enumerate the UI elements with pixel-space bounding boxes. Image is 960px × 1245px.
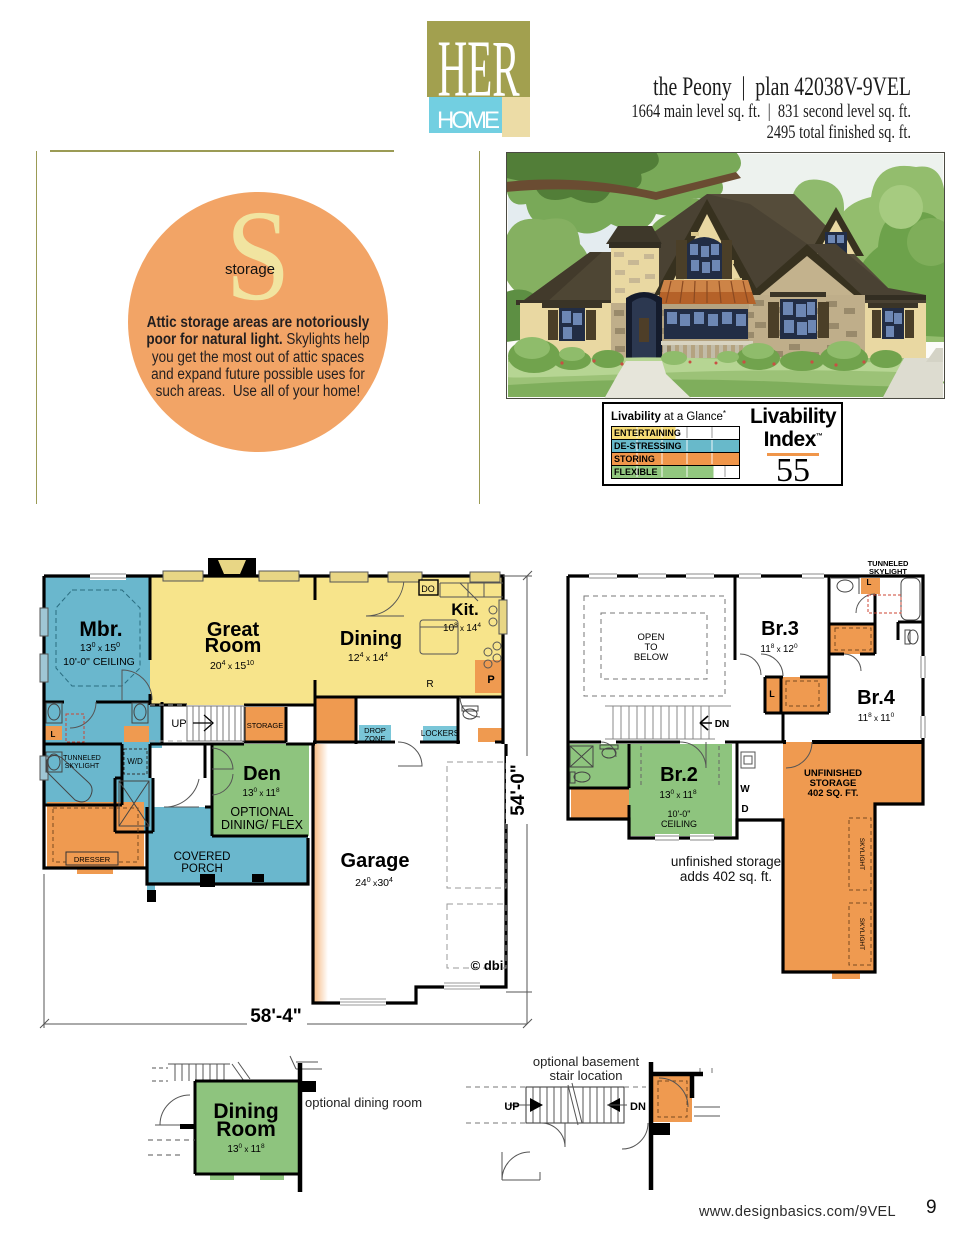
svg-text:OPTIONAL: OPTIONAL xyxy=(230,805,293,819)
svg-text:HER: HER xyxy=(438,24,520,114)
svg-text:unfinished storage: unfinished storage xyxy=(671,854,781,869)
svg-text:402 SQ. FT.: 402 SQ. FT. xyxy=(808,788,859,799)
svg-text:adds 402 sq. ft.: adds 402 sq. ft. xyxy=(680,869,772,884)
svg-text:COVERED: COVERED xyxy=(174,851,231,863)
svg-text:130 x 118: 130 x 118 xyxy=(242,787,280,799)
svg-text:Dining: Dining xyxy=(340,628,402,650)
svg-text:D: D xyxy=(741,804,748,815)
svg-text:240 x304: 240 x304 xyxy=(355,877,393,889)
svg-text:SKYLIGHT: SKYLIGHT xyxy=(65,763,100,770)
svg-text:© dbi: © dbi xyxy=(471,958,504,973)
svg-text:DN: DN xyxy=(630,1101,646,1113)
svg-text:BELOW: BELOW xyxy=(634,652,668,663)
svg-text:TUNNELED: TUNNELED xyxy=(63,755,101,762)
svg-text:Garage: Garage xyxy=(341,850,410,872)
svg-text:Den: Den xyxy=(243,763,281,785)
svg-text:Br.4: Br.4 xyxy=(857,687,896,709)
svg-text:stair location: stair location xyxy=(550,1068,623,1083)
svg-text:FLEXIBLE: FLEXIBLE xyxy=(614,467,658,477)
svg-text:118 x 110: 118 x 110 xyxy=(858,712,895,724)
svg-text:DE-STRESSING: DE-STRESSING xyxy=(614,441,682,451)
svg-text:10'-0" CEILING: 10'-0" CEILING xyxy=(63,656,135,668)
svg-text:130 x 150: 130 x 150 xyxy=(80,642,120,654)
svg-text:W: W xyxy=(740,784,750,795)
svg-text:SKYLIGHT: SKYLIGHT xyxy=(869,567,907,576)
svg-text:L: L xyxy=(51,730,56,739)
svg-text:10'-0": 10'-0" xyxy=(668,809,691,819)
svg-text:54'-0": 54'-0" xyxy=(508,764,529,816)
svg-text:HOME: HOME xyxy=(437,107,500,134)
svg-text:L: L xyxy=(769,689,775,699)
svg-text:ENTERTAINING: ENTERTAINING xyxy=(614,428,681,438)
svg-text:L: L xyxy=(867,578,872,587)
svg-text:UP: UP xyxy=(171,718,186,730)
svg-text:DO: DO xyxy=(421,584,435,594)
svg-text:DINING/ FLEX: DINING/ FLEX xyxy=(221,818,304,832)
svg-text:DRESSER: DRESSER xyxy=(74,855,111,864)
svg-text:W/D: W/D xyxy=(127,757,143,766)
svg-text:Room: Room xyxy=(216,1118,276,1141)
svg-text:ZONE: ZONE xyxy=(365,734,386,743)
svg-text:130 x 118: 130 x 118 xyxy=(227,1143,265,1155)
svg-text:Kit.: Kit. xyxy=(451,600,478,619)
svg-text:Br.2: Br.2 xyxy=(660,764,698,786)
svg-text:UP: UP xyxy=(504,1101,519,1113)
svg-text:LOCKERS: LOCKERS xyxy=(421,729,459,738)
svg-text:118 x 120: 118 x 120 xyxy=(760,643,798,655)
svg-text:optional basement: optional basement xyxy=(533,1054,640,1069)
svg-text:DN: DN xyxy=(715,719,729,730)
svg-text:58'-4": 58'-4" xyxy=(250,1006,302,1027)
svg-text:Room: Room xyxy=(205,635,262,657)
svg-text:Br.3: Br.3 xyxy=(761,618,799,640)
svg-text:Mbr.: Mbr. xyxy=(79,618,122,641)
svg-text:P: P xyxy=(487,674,494,686)
svg-text:CEILING: CEILING xyxy=(661,819,697,829)
svg-text:optional dining room: optional dining room xyxy=(305,1095,422,1110)
svg-text:130 x 118: 130 x 118 xyxy=(659,789,697,801)
svg-text:SKYLIGHT: SKYLIGHT xyxy=(858,918,865,950)
svg-text:PORCH: PORCH xyxy=(181,863,223,875)
svg-text:STORING: STORING xyxy=(614,454,655,464)
svg-text:124 x 144: 124 x 144 xyxy=(348,652,388,664)
svg-text:R: R xyxy=(426,679,433,690)
svg-text:108 x 144: 108 x 144 xyxy=(443,622,481,634)
svg-text:SKYLIGHT: SKYLIGHT xyxy=(858,838,865,870)
svg-text:STORAGE: STORAGE xyxy=(247,721,284,730)
